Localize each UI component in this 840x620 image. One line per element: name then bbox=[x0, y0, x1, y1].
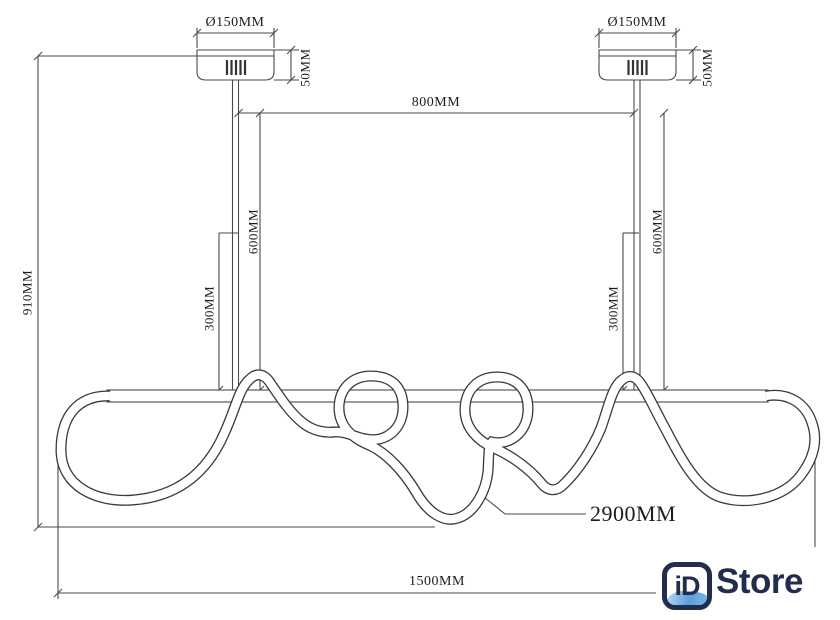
dimension-canopy-diameter-left bbox=[193, 28, 278, 48]
label-tube-length: 2900MM bbox=[590, 501, 676, 527]
dimension-canopy-height-right bbox=[676, 46, 701, 84]
label-overall-height: 910MM bbox=[20, 251, 35, 335]
label-canopy-height-left: 50MM bbox=[298, 26, 313, 110]
label-canopy-height-right: 50MM bbox=[700, 26, 715, 110]
dimension-rod-section-right bbox=[619, 233, 639, 394]
dimension-overall-height bbox=[34, 52, 435, 531]
dimension-canopy-diameter-right bbox=[595, 28, 680, 48]
technical-drawing-page: Ø150MM Ø150MM 50MM 50MM 800MM 910MM 600M… bbox=[0, 0, 840, 620]
label-overall-width: 1500MM bbox=[387, 574, 487, 590]
logo-store-text: Store bbox=[716, 562, 803, 602]
dimension-canopy-height-left bbox=[274, 46, 299, 84]
id-store-logo: iD Store bbox=[660, 560, 830, 616]
logo-badge-text: iD bbox=[667, 568, 707, 604]
logo-badge: iD bbox=[662, 562, 712, 610]
label-rod-section-right: 300MM bbox=[606, 267, 621, 351]
label-rod-section-left: 300MM bbox=[202, 267, 217, 351]
label-rod-spacing: 800MM bbox=[386, 95, 486, 111]
horizontal-bar bbox=[107, 390, 768, 402]
label-canopy-diameter-right: Ø150MM bbox=[587, 15, 687, 31]
suspension-rod-left bbox=[233, 80, 239, 391]
label-rod-length-right: 600MM bbox=[650, 190, 665, 274]
ceiling-canopy-left bbox=[197, 50, 274, 80]
ceiling-canopy-right bbox=[599, 50, 676, 80]
dimension-rod-section-left bbox=[215, 233, 238, 394]
label-rod-length-left: 600MM bbox=[246, 190, 261, 274]
leader-tube-length bbox=[484, 497, 586, 514]
label-canopy-diameter-left: Ø150MM bbox=[185, 15, 285, 31]
suspension-rod-right bbox=[634, 80, 640, 391]
